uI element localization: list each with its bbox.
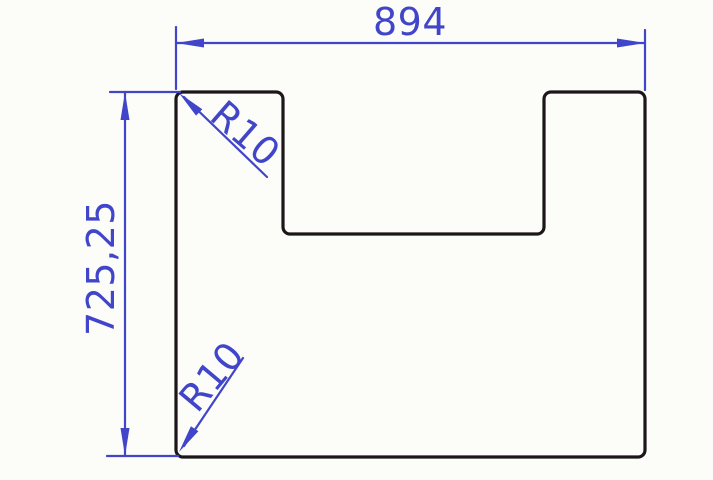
drawing-canvas: 894 725,25 R10 R10 xyxy=(0,0,713,480)
width-dimension-label: 894 xyxy=(340,2,480,42)
height-arrowhead-bottom xyxy=(121,428,130,456)
height-dimension-label: 725,25 xyxy=(81,158,121,378)
height-arrowhead-top xyxy=(121,92,130,120)
radius-leader-bottom-arrowhead xyxy=(175,426,198,454)
width-arrowhead-left xyxy=(176,39,204,48)
radius-leader-top-arrowhead xyxy=(176,90,202,116)
width-arrowhead-right xyxy=(617,39,645,48)
